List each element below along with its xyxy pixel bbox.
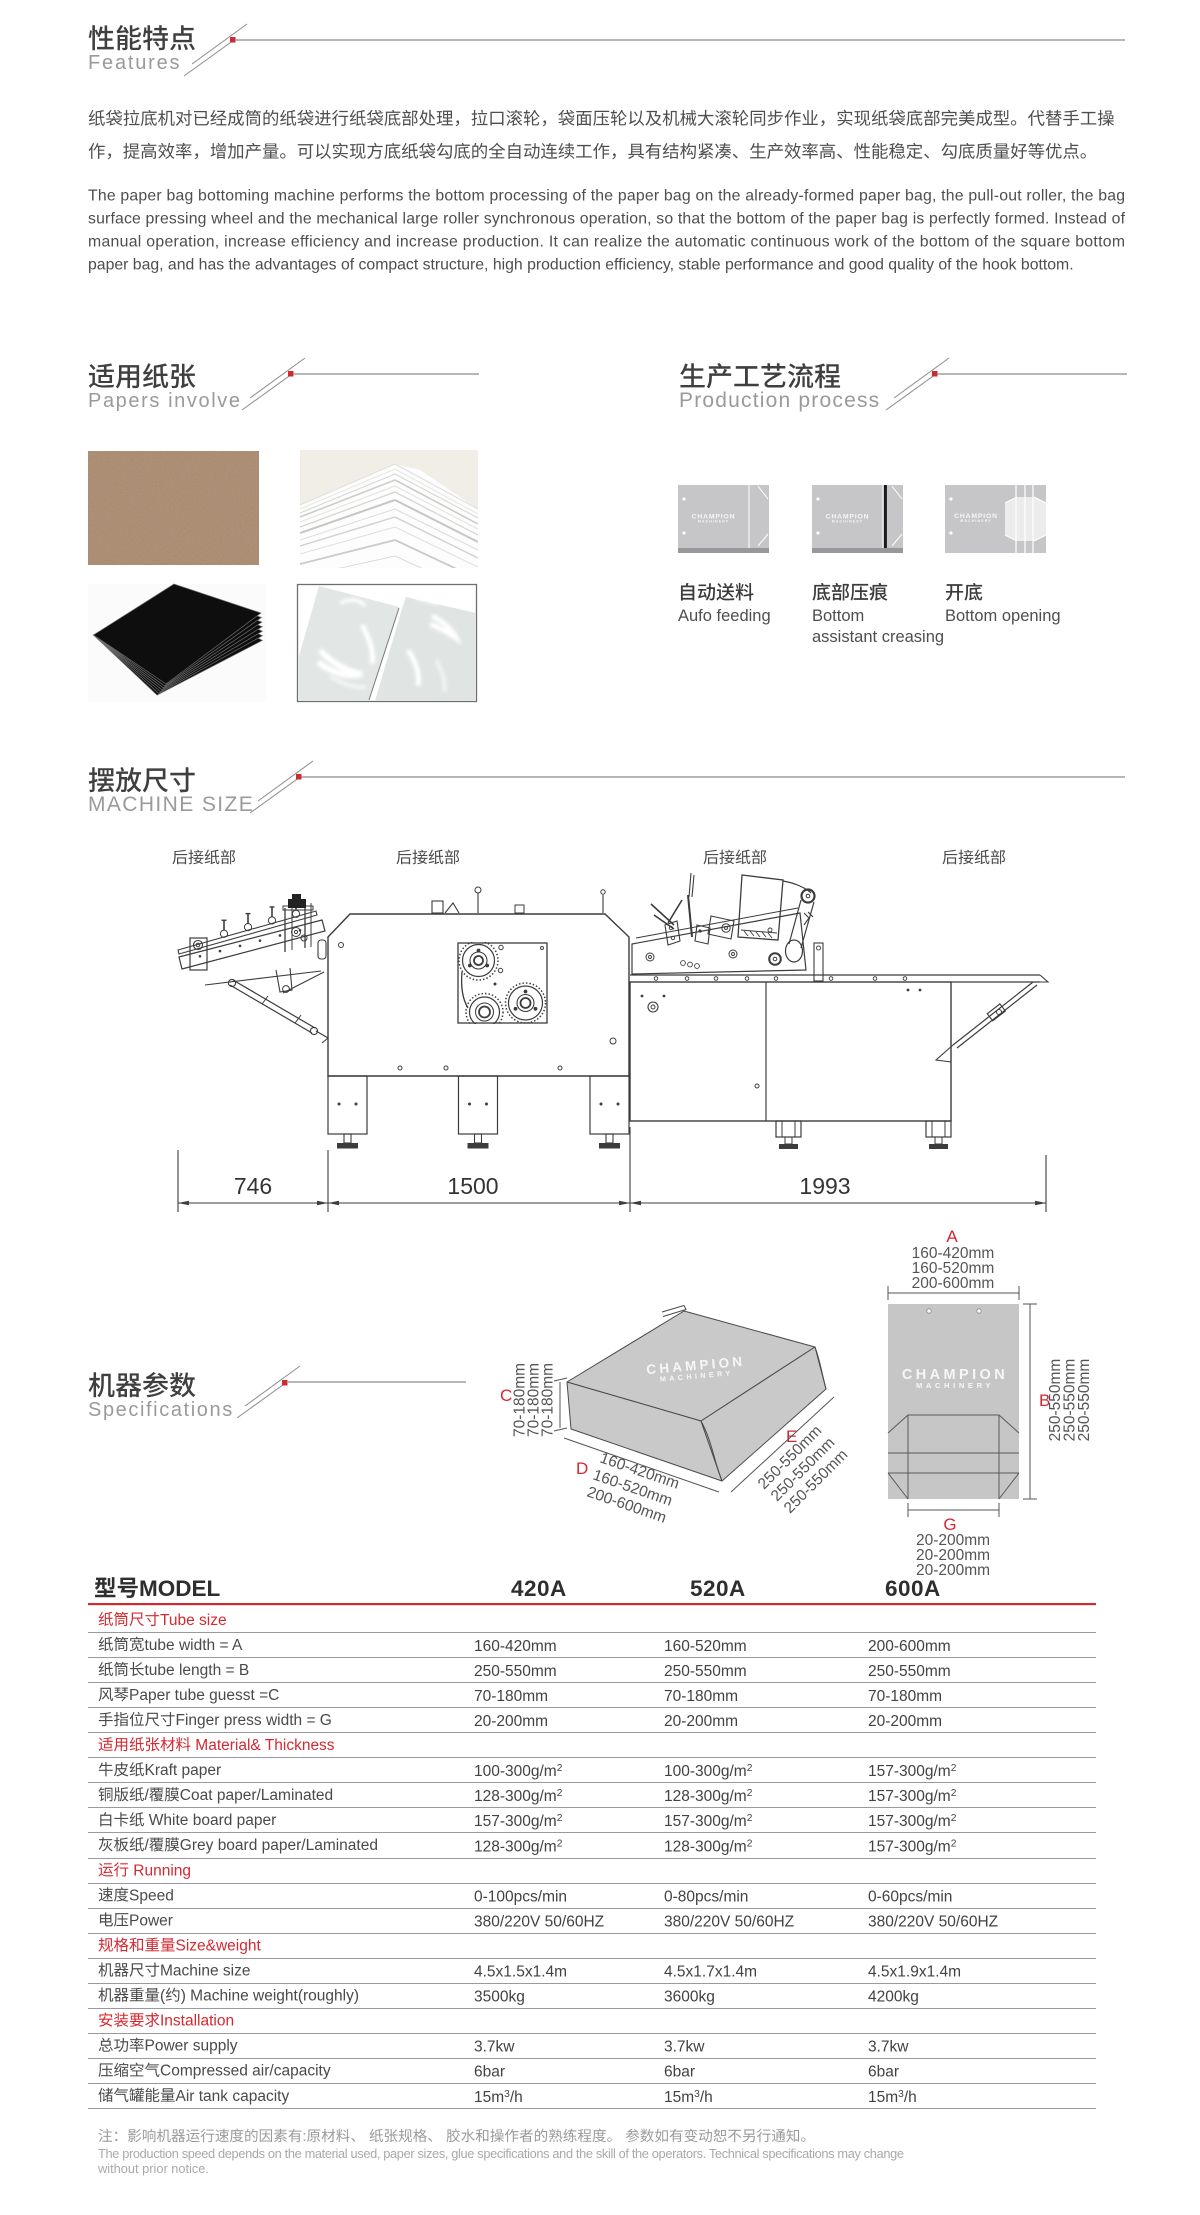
svg-text:200-600mm: 200-600mm — [912, 1275, 995, 1292]
svg-text:128-300g/m2: 128-300g/m2 — [664, 1788, 753, 1805]
svg-text:157-300g/m2: 157-300g/m2 — [868, 1763, 957, 1780]
svg-text:250-550mm: 250-550mm — [474, 1663, 557, 1680]
svg-text:128-300g/m2: 128-300g/m2 — [474, 1788, 563, 1805]
svg-text:Aufo feeding: Aufo feeding — [678, 607, 771, 625]
svg-text:4200kg: 4200kg — [868, 1989, 919, 2006]
svg-text:Coat paper/Laminated: Coat paper/Laminated — [180, 1787, 333, 1804]
svg-text:6bar: 6bar — [868, 2064, 899, 2081]
svg-text:Papers involve: Papers involve — [88, 390, 242, 412]
svg-text:The production speed depends o: The production speed depends on the mate… — [98, 2146, 904, 2161]
svg-text:Size&weight: Size&weight — [176, 1938, 262, 1955]
svg-text:surface pressing wheel and the: surface pressing wheel and the mechanica… — [88, 211, 1126, 228]
svg-text:15m3/h: 15m3/h — [474, 2089, 523, 2106]
svg-text:100-300g/m2: 100-300g/m2 — [474, 1763, 563, 1780]
svg-text:250-550mm: 250-550mm — [868, 1663, 951, 1680]
svg-text:Kraft paper: Kraft paper — [145, 1762, 222, 1779]
svg-text:manual operation, increase eff: manual operation, increase efficiency an… — [88, 234, 1125, 251]
svg-text:D: D — [576, 1459, 588, 1478]
svg-text:The paper bag bottoming machin: The paper bag bottoming machine performs… — [88, 188, 1125, 205]
svg-text:6bar: 6bar — [664, 2064, 695, 2081]
svg-text:Machine size: Machine size — [160, 1963, 250, 1980]
svg-text:tube length = B: tube length = B — [145, 1662, 250, 1679]
svg-text:) Machine weight(roughly): ) Machine weight(roughly) — [181, 1988, 359, 2005]
svg-text:0-100pcs/min: 0-100pcs/min — [474, 1888, 567, 1905]
svg-text:6bar: 6bar — [474, 2064, 505, 2081]
svg-text:157-300g/m2: 157-300g/m2 — [868, 1788, 957, 1805]
svg-text:15m3/h: 15m3/h — [664, 2089, 713, 2106]
svg-text:20-200mm: 20-200mm — [664, 1713, 738, 1730]
svg-text:128-300g/m2: 128-300g/m2 — [664, 1838, 753, 1855]
svg-text:157-300g/m2: 157-300g/m2 — [664, 1813, 753, 1830]
svg-text:C: C — [500, 1386, 512, 1405]
svg-text:157-300g/m2: 157-300g/m2 — [868, 1813, 957, 1830]
svg-text:MACHINE SIZE: MACHINE SIZE — [88, 793, 254, 816]
svg-text:70-180mm: 70-180mm — [868, 1688, 942, 1705]
svg-text:Power: Power — [129, 1912, 173, 1929]
svg-text:Production process: Production process — [679, 389, 880, 412]
svg-text:Material& Thickness: Material& Thickness — [195, 1737, 335, 1754]
svg-text:Compressed air/capacity: Compressed air/capacity — [160, 2063, 331, 2080]
svg-text:tube width = A: tube width = A — [145, 1637, 243, 1654]
svg-text:70-180mm: 70-180mm — [474, 1688, 548, 1705]
svg-text:Tube size: Tube size — [160, 1612, 227, 1629]
svg-text:70-180mm: 70-180mm — [540, 1363, 557, 1437]
svg-text:4.5x1.7x1.4m: 4.5x1.7x1.4m — [664, 1964, 757, 1981]
svg-text:380/220V 50/60HZ: 380/220V 50/60HZ — [474, 1913, 604, 1930]
svg-text:3600kg: 3600kg — [664, 1989, 715, 2006]
svg-text:200-600mm: 200-600mm — [868, 1638, 951, 1655]
svg-text:3500kg: 3500kg — [474, 1989, 525, 2006]
svg-text:Bottom: Bottom — [812, 607, 864, 625]
svg-text:/: / — [145, 1787, 150, 1804]
svg-text:128-300g/m2: 128-300g/m2 — [474, 1838, 563, 1855]
svg-text:assistant creasing: assistant creasing — [812, 628, 944, 646]
svg-text:MACHINERY: MACHINERY — [960, 519, 992, 523]
svg-text:250-550mm: 250-550mm — [664, 1663, 747, 1680]
svg-text:250-550mm: 250-550mm — [1076, 1359, 1093, 1442]
svg-text:MACHINERY: MACHINERY — [832, 520, 864, 524]
svg-text:Finger press width = G: Finger press width = G — [176, 1712, 332, 1729]
svg-text:160-420mm: 160-420mm — [474, 1638, 557, 1655]
svg-text:without prior notice.: without prior notice. — [97, 2161, 209, 2176]
svg-text:1500: 1500 — [447, 1173, 498, 1199]
svg-text:Bottom opening: Bottom opening — [945, 607, 1061, 625]
svg-text:White board paper: White board paper — [149, 1812, 277, 1829]
svg-text:380/220V 50/60HZ: 380/220V 50/60HZ — [664, 1913, 794, 1930]
svg-text:A: A — [946, 1227, 958, 1246]
svg-text:Power supply: Power supply — [145, 2038, 238, 2055]
svg-text:/: / — [145, 1837, 150, 1854]
svg-text:157-300g/m2: 157-300g/m2 — [868, 1838, 957, 1855]
svg-text:3.7kw: 3.7kw — [474, 2039, 515, 2056]
svg-text:20-200mm: 20-200mm — [868, 1713, 942, 1730]
svg-text:Speed: Speed — [129, 1887, 174, 1904]
svg-text:0-60pcs/min: 0-60pcs/min — [868, 1888, 952, 1905]
svg-text:(: ( — [160, 1988, 166, 2005]
svg-text:600A: 600A — [885, 1576, 941, 1601]
svg-text:Paper tube guesst =C: Paper tube guesst =C — [129, 1687, 279, 1704]
svg-text:20-200mm: 20-200mm — [474, 1713, 548, 1730]
svg-text:Grey board paper/Laminated: Grey board paper/Laminated — [180, 1837, 378, 1854]
svg-text:746: 746 — [234, 1173, 272, 1199]
svg-text:70-180mm: 70-180mm — [664, 1688, 738, 1705]
svg-text:MACHINERY: MACHINERY — [916, 1381, 994, 1390]
svg-text:Installation: Installation — [160, 2013, 234, 2030]
svg-text:160-520mm: 160-520mm — [664, 1638, 747, 1655]
svg-text:Features: Features — [88, 52, 181, 74]
svg-text:157-300g/m2: 157-300g/m2 — [474, 1813, 563, 1830]
svg-text:Running: Running — [133, 1862, 191, 1879]
svg-text:420A: 420A — [511, 1576, 567, 1601]
svg-text:MODEL: MODEL — [139, 1576, 221, 1601]
svg-text:1993: 1993 — [799, 1173, 850, 1199]
svg-text:Air tank capacity: Air tank capacity — [176, 2088, 290, 2105]
svg-text:3.7kw: 3.7kw — [868, 2039, 909, 2056]
svg-text::: : — [302, 2129, 306, 2145]
svg-text:4.5x1.9x1.4m: 4.5x1.9x1.4m — [868, 1964, 961, 1981]
svg-text:Specifications: Specifications — [88, 1399, 234, 1421]
svg-text:3.7kw: 3.7kw — [664, 2039, 705, 2056]
svg-text:380/220V 50/60HZ: 380/220V 50/60HZ — [868, 1913, 998, 1930]
svg-text:4.5x1.5x1.4m: 4.5x1.5x1.4m — [474, 1964, 567, 1981]
svg-text:MACHINERY: MACHINERY — [698, 520, 730, 524]
svg-text:0-80pcs/min: 0-80pcs/min — [664, 1888, 748, 1905]
svg-text:paper bag, and has the advanta: paper bag, and has the advantages of com… — [88, 257, 1074, 274]
svg-text:520A: 520A — [690, 1576, 746, 1601]
svg-text:100-300g/m2: 100-300g/m2 — [664, 1763, 753, 1780]
svg-text:15m3/h: 15m3/h — [868, 2089, 917, 2106]
